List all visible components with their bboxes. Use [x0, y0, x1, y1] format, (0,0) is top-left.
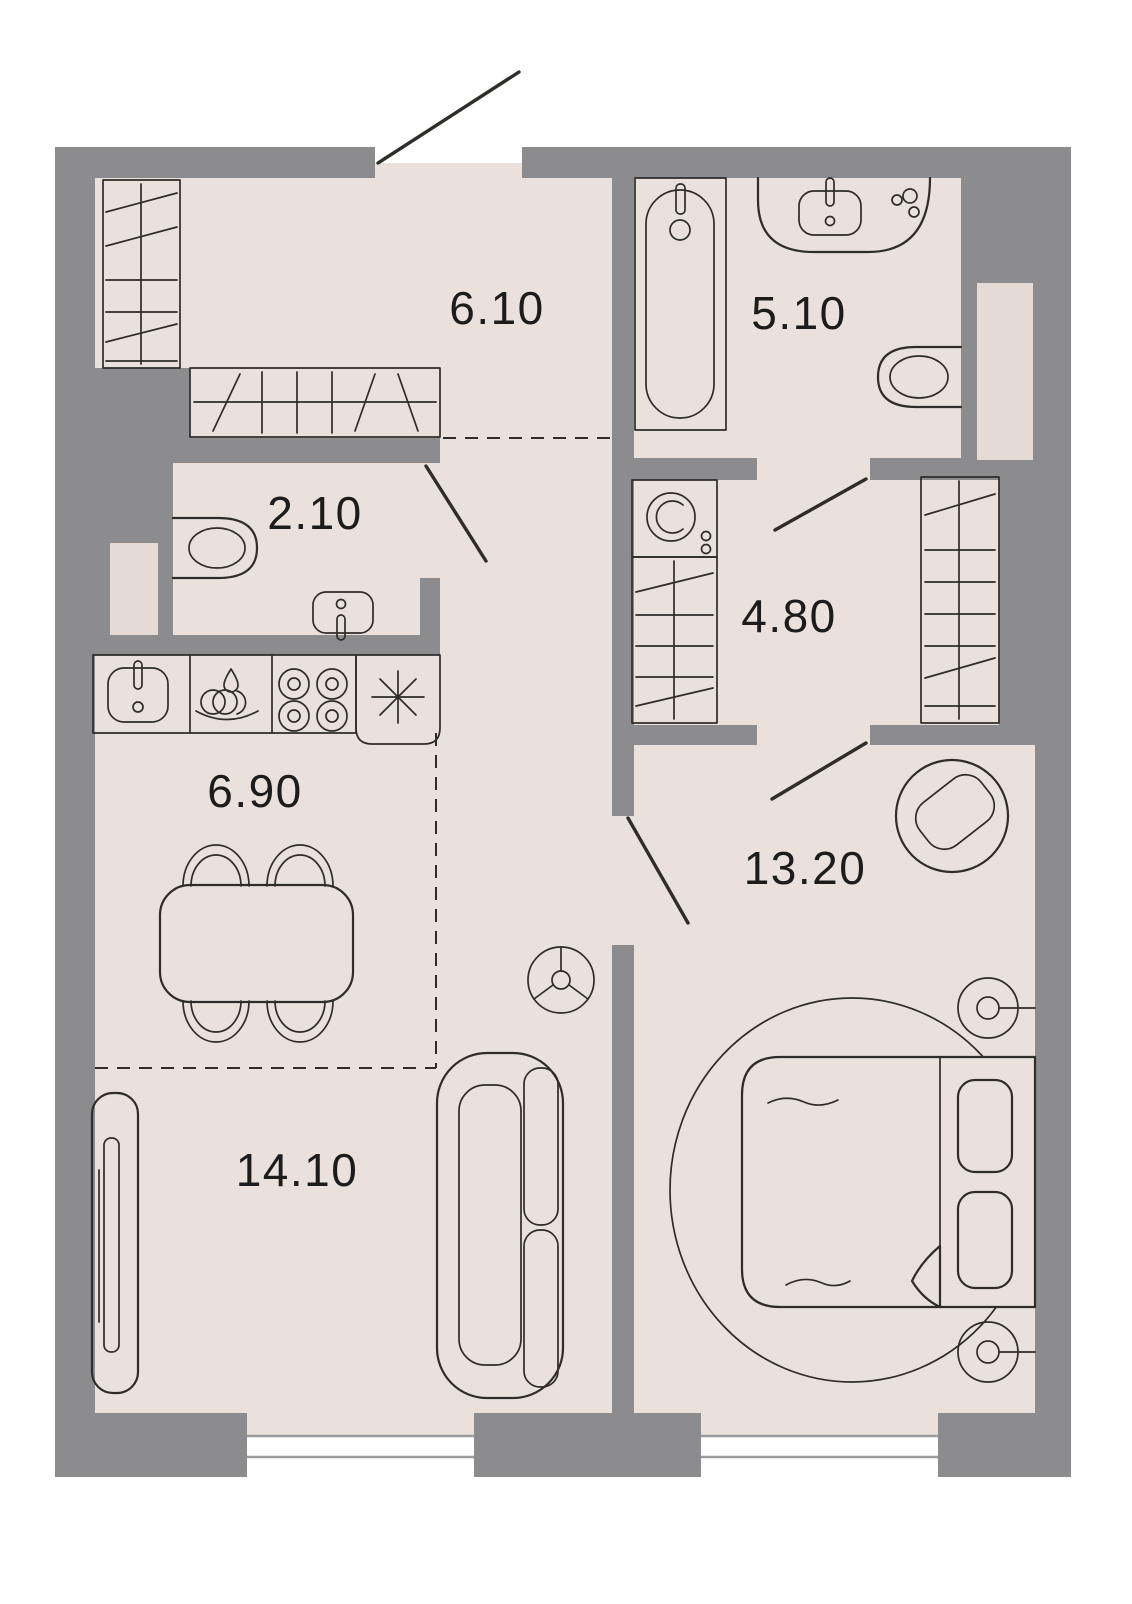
room-area-label-bedroom: 13.20	[744, 842, 867, 894]
window-icon	[247, 1436, 474, 1457]
room-area-label-kitchen: 6.90	[207, 765, 303, 817]
room-area-label-entrance-hall: 6.10	[449, 282, 545, 334]
window-sill-living	[247, 1413, 474, 1436]
floor-plan-page: 6.10 5.10 2.10 4.80 6.90 13.20 14.10	[0, 0, 1132, 1604]
room-area-label-living-room: 14.10	[236, 1144, 359, 1196]
room-area-label-dressing-room: 4.80	[741, 590, 837, 642]
pillow-icon	[958, 1192, 1012, 1288]
window-sill-bedroom	[701, 1413, 938, 1436]
window-icon	[701, 1436, 938, 1457]
room-area-label-bathroom: 5.10	[751, 287, 847, 339]
shaft-wc	[110, 543, 158, 635]
bed-icon	[742, 1057, 1035, 1307]
floor-plan: 6.10 5.10 2.10 4.80 6.90 13.20 14.10	[0, 0, 1132, 1604]
room-area-label-wc: 2.10	[267, 487, 363, 539]
shaft-right	[977, 283, 1033, 460]
pillow-icon	[958, 1080, 1012, 1172]
